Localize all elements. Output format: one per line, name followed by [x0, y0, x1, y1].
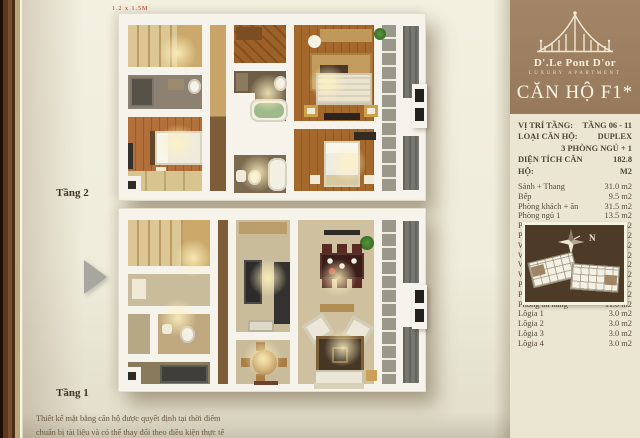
area-row-value: 31.0 m2	[605, 182, 632, 192]
sink-unit	[248, 320, 274, 332]
spec-row: DIỆN TÍCH CĂN HỘ:182.8 M2	[518, 154, 632, 177]
bed	[324, 141, 360, 187]
ac-unit	[415, 309, 424, 322]
disclaimer-caption: Thiết kế mặt bằng căn hộ được quyết định…	[36, 412, 246, 438]
closet-column	[207, 22, 229, 194]
caption-line: Thiết kế mặt bằng căn hộ được quyết định…	[36, 414, 220, 423]
area-row: Lôgia 13.0 m2	[518, 309, 632, 319]
arrow-icon	[84, 260, 107, 294]
toilet	[274, 76, 287, 91]
doormat	[254, 381, 278, 385]
dining-chair	[241, 358, 250, 367]
toilet	[180, 326, 195, 343]
bed	[316, 73, 372, 105]
info-sidebar: D'.Le Pont D'or LUXURY APARTMENT CĂN HỘ …	[510, 0, 640, 438]
bed	[155, 131, 202, 165]
living-dining-room	[295, 217, 377, 387]
stair-landing	[183, 220, 210, 266]
page-shadow-right	[494, 0, 510, 438]
dining-table	[320, 253, 364, 279]
kitchen	[233, 217, 293, 335]
nightstand	[310, 175, 320, 184]
spec-row: LOẠI CĂN HỘ:DUPLEX	[518, 131, 632, 142]
binding-edge	[0, 0, 23, 438]
area-row-value: 3.0 m2	[609, 329, 632, 339]
coffee-table	[332, 347, 348, 363]
shelf	[236, 73, 248, 91]
area-row-label: Lôgia 1	[518, 309, 544, 319]
plant	[360, 236, 374, 250]
area-row: Phòng khách + ăn31.5 m2	[518, 202, 632, 212]
vanity	[168, 79, 184, 90]
unit-title: CĂN HỘ F1*	[510, 82, 640, 104]
pillows	[157, 133, 168, 163]
shower	[130, 77, 154, 107]
spec-row-value: TẦNG 06 - 11	[582, 120, 632, 131]
area-row-value: 13.5 m2	[605, 211, 632, 221]
foot-band	[326, 175, 358, 185]
spec-row-value: 182.8 M2	[599, 154, 632, 177]
stair-landing	[177, 25, 202, 67]
page-shadow-left	[23, 0, 83, 438]
logia-bottom	[401, 134, 421, 192]
spec-row-value: DUPLEX	[598, 131, 632, 142]
floorplan-tang-1	[118, 208, 426, 392]
toilet	[188, 79, 201, 94]
dimension-note: 1.2 x 1.5M	[112, 6, 148, 12]
caption-line: chuẩn bị tài liệu và có thể thay đổi the…	[36, 428, 224, 437]
master-bedroom	[291, 22, 377, 124]
sink	[162, 324, 172, 334]
dresser	[320, 29, 372, 42]
spec-row-value: 3 PHÒNG NGỦ + 1	[561, 143, 632, 154]
hallway	[125, 271, 213, 309]
sidebar-body: VỊ TRÍ TẦNG:TẦNG 06 - 11LOẠI CĂN HỘ:DUPL…	[510, 114, 640, 438]
area-row-label: Lôgia 4	[518, 339, 544, 349]
wardrobe-strip	[379, 22, 399, 194]
dining-chairs	[322, 279, 362, 288]
dining-chair	[278, 358, 287, 367]
bedroom-2	[291, 126, 377, 194]
sofa	[314, 370, 364, 389]
logia-top	[401, 219, 421, 285]
unit-location	[531, 264, 546, 277]
tv-shelf	[354, 132, 376, 140]
toilet	[248, 170, 261, 185]
floorplan-tang-2	[118, 13, 426, 201]
area-row: Sảnh + Thang31.0 m2	[518, 182, 632, 192]
logia-bottom	[401, 325, 421, 385]
closet	[130, 277, 148, 301]
bridge-logo-icon	[529, 10, 621, 56]
tall-cabinet	[274, 262, 290, 324]
sidebar-header: D'.Le Pont D'or LUXURY APARTMENT CĂN HỘ …	[510, 0, 640, 114]
floor-1-label: Tầng 1	[56, 387, 89, 399]
siteplan-box: N	[522, 222, 627, 305]
nightstand	[304, 105, 318, 117]
mat	[324, 230, 360, 235]
area-row-label: Lôgia 2	[518, 319, 544, 329]
ac-unit	[415, 290, 424, 303]
unit-location	[605, 275, 618, 286]
breakfast-nook	[233, 337, 293, 387]
ac-unit	[415, 89, 424, 102]
side-table	[366, 370, 377, 381]
corridor	[125, 311, 153, 357]
area-row-value: 3.0 m2	[609, 319, 632, 329]
area-row-label: Sảnh + Thang	[518, 182, 565, 192]
plant	[374, 28, 386, 40]
dining-chairs	[322, 244, 362, 253]
bathtub	[268, 158, 287, 191]
area-row-label: Phòng ngủ 1	[518, 211, 560, 221]
area-rug	[316, 336, 364, 374]
area-row-value: 9.5 m2	[609, 192, 632, 202]
spec-row-label: VỊ TRÍ TẦNG:	[518, 120, 573, 131]
spec-row-label: LOẠI CĂN HỘ:	[518, 131, 578, 142]
spec-row-label: DIỆN TÍCH CĂN HỘ:	[518, 154, 599, 177]
spec-list: VỊ TRÍ TẦNG:TẦNG 06 - 11LOẠI CĂN HỘ:DUPL…	[518, 120, 632, 177]
closet	[236, 27, 262, 40]
area-row: Bếp9.5 m2	[518, 192, 632, 202]
lamp	[308, 35, 321, 48]
sink	[236, 170, 246, 182]
area-row: Lôgia 23.0 m2	[518, 319, 632, 329]
area-row: Phòng ngủ 113.5 m2	[518, 211, 632, 221]
area-row: Lôgia 43.0 m2	[518, 339, 632, 349]
nightstand	[364, 175, 374, 184]
column-box	[123, 367, 141, 385]
kitchen-island	[244, 260, 262, 304]
tv-cabinet	[128, 143, 133, 169]
brand-tagline: LUXURY APARTMENT	[510, 71, 640, 76]
area-row-value: 3.0 m2	[609, 339, 632, 349]
area-row-value: 31.5 m2	[605, 202, 632, 212]
area-row-value: 3.0 m2	[609, 309, 632, 319]
brand-name: D'.Le Pont D'or	[510, 57, 640, 69]
column-box	[123, 176, 141, 194]
bath-water	[254, 103, 284, 118]
bathtub	[250, 99, 288, 122]
floor-2-label: Tầng 2	[56, 187, 89, 199]
upper-cabinets	[239, 222, 287, 234]
wc-1	[155, 311, 213, 357]
area-row-label: Lôgia 3	[518, 329, 544, 339]
ac-unit	[415, 108, 424, 121]
spec-row: VỊ TRÍ TẦNG:TẦNG 06 - 11	[518, 120, 632, 131]
wardrobe-strip	[379, 217, 399, 387]
washing-machines	[160, 365, 208, 383]
round-table	[252, 350, 277, 375]
console-table	[320, 304, 354, 312]
spec-row: 3 PHÒNG NGỦ + 1	[518, 143, 632, 154]
ac-ledge	[412, 285, 427, 329]
brochure-page: 1.2 x 1.5M	[0, 0, 640, 438]
area-row-label: Bếp	[518, 192, 532, 202]
area-row: Lôgia 33.0 m2	[518, 329, 632, 339]
building-footprint	[570, 263, 620, 292]
area-row-label: Phòng khách + ăn	[518, 202, 578, 212]
ac-ledge	[412, 84, 427, 128]
wc-2	[231, 152, 289, 196]
hall-upper	[231, 22, 289, 66]
corridor-vertical	[215, 217, 231, 387]
nightstand	[364, 105, 378, 117]
wc-master	[231, 68, 289, 124]
north-label: N	[589, 233, 596, 243]
bench	[324, 113, 360, 120]
pillows	[326, 143, 358, 153]
bathroom-1	[125, 72, 205, 112]
